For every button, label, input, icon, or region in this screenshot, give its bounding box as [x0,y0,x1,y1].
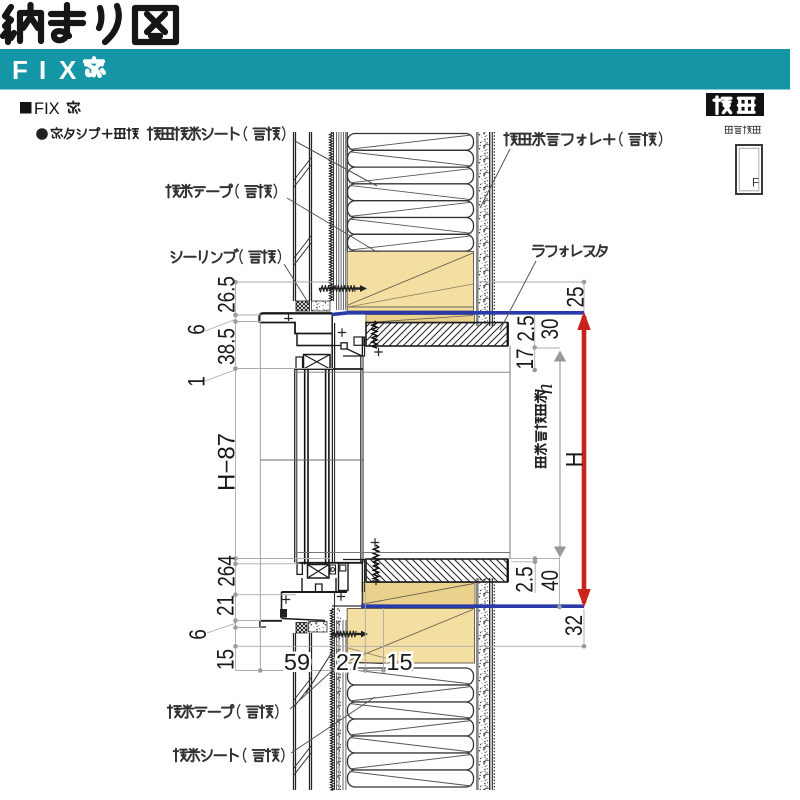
svg-text:26.5: 26.5 [212,276,240,313]
svg-text:2.5: 2.5 [510,566,538,592]
svg-text:6: 6 [184,629,212,640]
svg-text:59: 59 [284,649,310,675]
svg-text:X: X [59,55,77,85]
svg-text:32: 32 [560,615,588,636]
svg-text:1: 1 [182,376,210,387]
svg-text:264: 264 [212,555,240,587]
svg-text:F: F [752,178,759,190]
svg-text:6: 6 [182,324,210,335]
svg-text:21: 21 [211,595,239,616]
svg-text:27: 27 [336,649,362,675]
svg-text:FIX: FIX [34,100,60,118]
svg-text:h: h [531,384,557,395]
svg-text:I: I [39,55,46,85]
svg-text:38.5: 38.5 [212,328,240,365]
svg-text:H: H [560,452,587,468]
svg-text:25: 25 [561,286,589,307]
svg-text:15: 15 [386,649,412,675]
svg-text:F: F [12,55,28,85]
svg-text:H−87: H−87 [213,433,240,491]
svg-text:15: 15 [211,649,239,670]
svg-text:30: 30 [536,318,564,339]
